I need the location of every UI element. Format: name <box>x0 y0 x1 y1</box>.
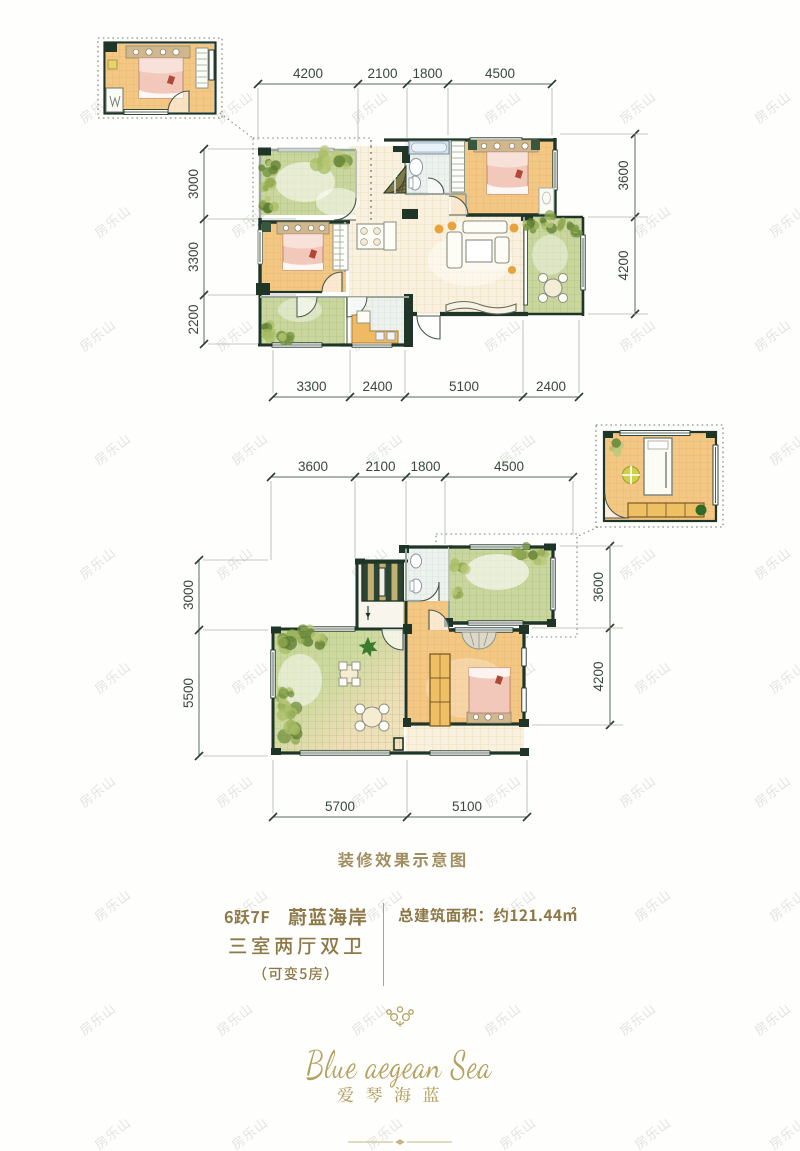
svg-text:3000: 3000 <box>181 580 196 610</box>
svg-text:1800: 1800 <box>412 66 442 81</box>
svg-text:2100: 2100 <box>365 459 395 474</box>
svg-text:2100: 2100 <box>367 66 397 81</box>
svg-text:5100: 5100 <box>452 799 482 814</box>
svg-text:4200: 4200 <box>616 250 631 280</box>
svg-text:4200: 4200 <box>293 66 323 81</box>
svg-text:4500: 4500 <box>485 66 515 81</box>
svg-text:4500: 4500 <box>494 459 524 474</box>
svg-text:2: 2 <box>571 906 577 917</box>
svg-text:5100: 5100 <box>449 379 479 394</box>
svg-text:2400: 2400 <box>536 379 566 394</box>
svg-text:1800: 1800 <box>410 459 440 474</box>
svg-text:5500: 5500 <box>181 678 196 708</box>
svg-text:3000: 3000 <box>186 169 201 199</box>
svg-text:3300: 3300 <box>186 242 201 272</box>
svg-text:5700: 5700 <box>325 799 355 814</box>
svg-text:2200: 2200 <box>186 304 201 334</box>
svg-text:2400: 2400 <box>362 379 392 394</box>
svg-text:3600: 3600 <box>616 160 631 190</box>
svg-text:3300: 3300 <box>296 379 326 394</box>
svg-text:4200: 4200 <box>591 661 606 691</box>
svg-text:3600: 3600 <box>591 572 606 602</box>
svg-text:3600: 3600 <box>298 459 328 474</box>
